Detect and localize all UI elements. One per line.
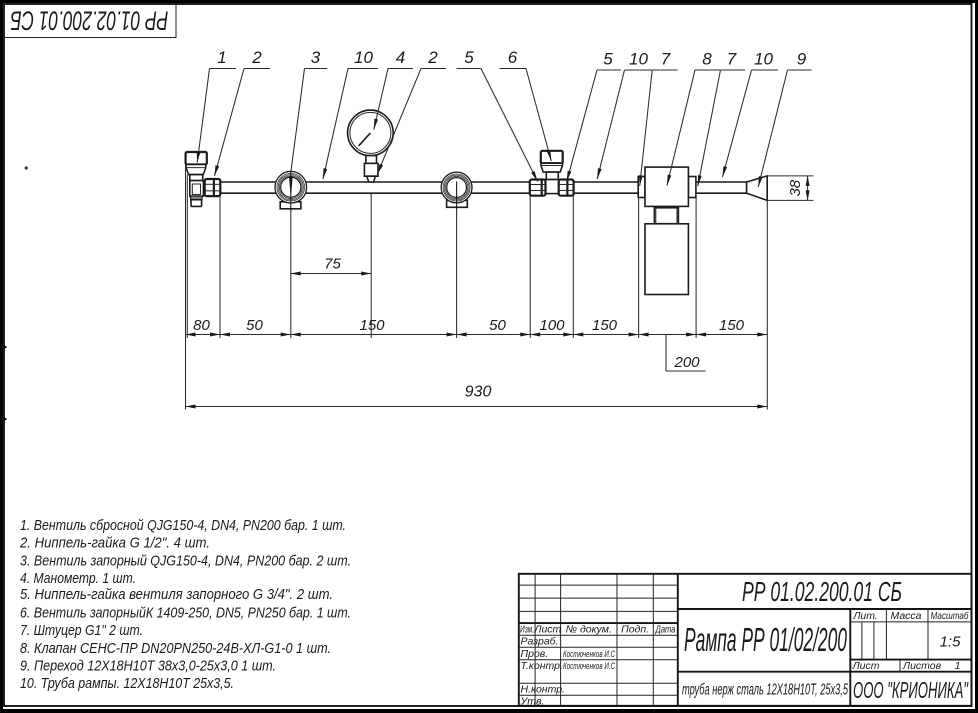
svg-text:Утв.: Утв.	[520, 695, 545, 707]
svg-text:6: 6	[508, 48, 518, 67]
svg-text:6. Вентиль запорныйК 1409-250,: 6. Вентиль запорныйК 1409-250, DN5, PN25…	[20, 605, 351, 622]
svg-text:Лист: Лист	[533, 624, 561, 636]
svg-text:Н.контр.: Н.контр.	[521, 684, 565, 696]
svg-text:Дата: Дата	[655, 624, 676, 636]
svg-text:200: 200	[673, 354, 700, 371]
svg-text:9: 9	[797, 50, 807, 69]
svg-text:150: 150	[359, 317, 385, 334]
svg-text:7. Штуцер G1" 2 шт.: 7. Штуцер G1" 2 шт.	[20, 622, 143, 639]
svg-text:8. Клапан СЕНС-ПР DN20PN250-24: 8. Клапан СЕНС-ПР DN20PN250-24В-ХЛ-G1-0 …	[20, 640, 331, 657]
svg-text:150: 150	[719, 317, 745, 334]
svg-text:2. Ниппель-гайка G 1/2". 4 шт.: 2. Ниппель-гайка G 1/2". 4 шт.	[19, 535, 210, 552]
svg-text:Масса: Масса	[890, 610, 921, 622]
svg-text:Рампа РР 01/02/200: Рампа РР 01/02/200	[684, 621, 847, 658]
svg-text:9. Переход 12Х18Н10Т 38х3,0-25: 9. Переход 12Х18Н10Т 38х3,0-25х3,0 1 шт.	[20, 657, 276, 674]
svg-text:10: 10	[354, 48, 373, 67]
svg-text:10. Труба рампы. 12Х18Н10Т 25х: 10. Труба рампы. 12Х18Н10Т 25х3,5.	[20, 675, 234, 692]
svg-text:4. Манометр. 1 шт.: 4. Манометр. 1 шт.	[20, 570, 136, 587]
svg-text:10: 10	[629, 50, 648, 69]
svg-text:РР 01.02.200.01 СБ: РР 01.02.200.01 СБ	[10, 6, 168, 36]
svg-text:Листов: Листов	[902, 660, 942, 672]
svg-text:Костюченков И.С: Костюченков И.С	[563, 649, 615, 660]
svg-text:75: 75	[324, 256, 341, 273]
svg-text:7: 7	[661, 50, 671, 69]
svg-text:1: 1	[955, 660, 961, 672]
svg-text:Пров.: Пров.	[521, 648, 549, 660]
svg-text:8: 8	[702, 50, 712, 69]
svg-text:5: 5	[603, 50, 613, 69]
svg-text:2: 2	[427, 48, 438, 67]
svg-text:80: 80	[193, 317, 210, 334]
svg-text:1:5: 1:5	[940, 634, 962, 651]
svg-text:4: 4	[396, 48, 405, 67]
svg-text:7: 7	[727, 50, 737, 69]
svg-text:150: 150	[592, 317, 618, 334]
svg-text:3: 3	[311, 48, 321, 67]
svg-text:10: 10	[754, 50, 773, 69]
svg-text:3. Вентиль запорный QJG150-4,: 3. Вентиль запорный QJG150-4, DN4, PN200…	[20, 552, 351, 569]
svg-text:50: 50	[246, 317, 263, 334]
svg-text:Лит.: Лит.	[852, 610, 878, 622]
svg-text:1. Вентиль сбросной QJG150-4,: 1. Вентиль сбросной QJG150-4, DN4, PN200…	[20, 517, 346, 534]
svg-text:5: 5	[464, 48, 474, 67]
svg-text:Разраб.: Разраб.	[521, 636, 559, 648]
svg-text:100: 100	[539, 317, 565, 334]
svg-text:Лист: Лист	[851, 660, 879, 672]
svg-text:2: 2	[251, 48, 262, 67]
svg-text:1: 1	[217, 48, 226, 67]
svg-text:930: 930	[465, 384, 492, 401]
svg-text:Масштаб: Масштаб	[931, 610, 970, 622]
svg-text:38: 38	[787, 179, 804, 196]
svg-text:Костюченков И.С: Костюченков И.С	[563, 661, 615, 672]
svg-text:Подп.: Подп.	[621, 624, 649, 636]
svg-text:5. Ниппель-гайка вентиля запор: 5. Ниппель-гайка вентиля запорного G 3/4…	[20, 586, 333, 603]
svg-text:Изм.: Изм.	[520, 624, 534, 636]
svg-text:№ докум.: № докум.	[566, 624, 612, 636]
svg-text:РР 01.02.200.01 СБ: РР 01.02.200.01 СБ	[742, 576, 902, 607]
svg-text:труба нерж сталь 12Х18Н10Т, 25: труба нерж сталь 12Х18Н10Т, 25х3,5	[682, 682, 848, 699]
svg-text:50: 50	[489, 317, 506, 334]
svg-text:Т.контр.: Т.контр.	[521, 660, 563, 672]
svg-text:ООО "КРИОНИКА": ООО "КРИОНИКА"	[853, 677, 969, 703]
